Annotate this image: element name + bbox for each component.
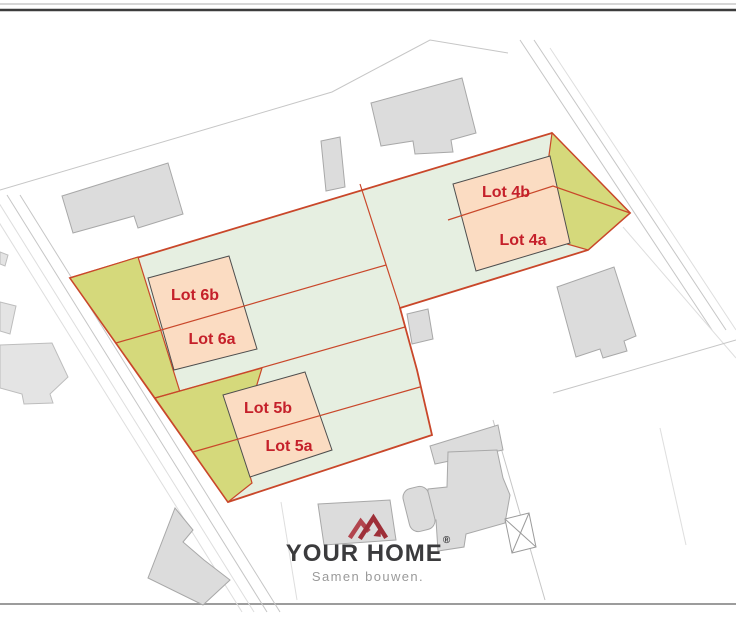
lot-label-6a: Lot 6a	[188, 331, 235, 348]
site-plan-page: Lot 6b Lot 6a Lot 5b Lot 5a Lot 4b Lot 4…	[0, 0, 736, 617]
building-bottom-left	[148, 508, 230, 605]
lot-label-5a: Lot 5a	[265, 438, 312, 455]
building-bottom-main	[427, 450, 510, 551]
building-left-tiny	[0, 252, 8, 266]
lot-label-4b: Lot 4b	[482, 184, 530, 201]
bottom-parcel-line	[281, 502, 297, 600]
building-right	[557, 267, 636, 358]
lot-label-6b: Lot 6b	[171, 287, 219, 304]
barn-cross-symbol	[505, 513, 536, 553]
building-top-middle	[371, 78, 476, 154]
lot-label-5b: Lot 5b	[244, 400, 292, 417]
shed-middle	[407, 309, 433, 344]
right-parcel-line	[623, 227, 736, 358]
building-left-mid	[0, 343, 68, 404]
bottom-right-parcel-line	[660, 428, 686, 545]
building-top-left	[62, 163, 183, 233]
building-behind-logo	[318, 500, 396, 545]
site-plan-drawing: Lot 6b Lot 6a Lot 5b Lot 5a Lot 4b Lot 4…	[0, 0, 736, 617]
lot-label-4a: Lot 4a	[499, 232, 546, 249]
building-narrow-top	[321, 137, 345, 191]
building-left-small	[0, 302, 16, 334]
